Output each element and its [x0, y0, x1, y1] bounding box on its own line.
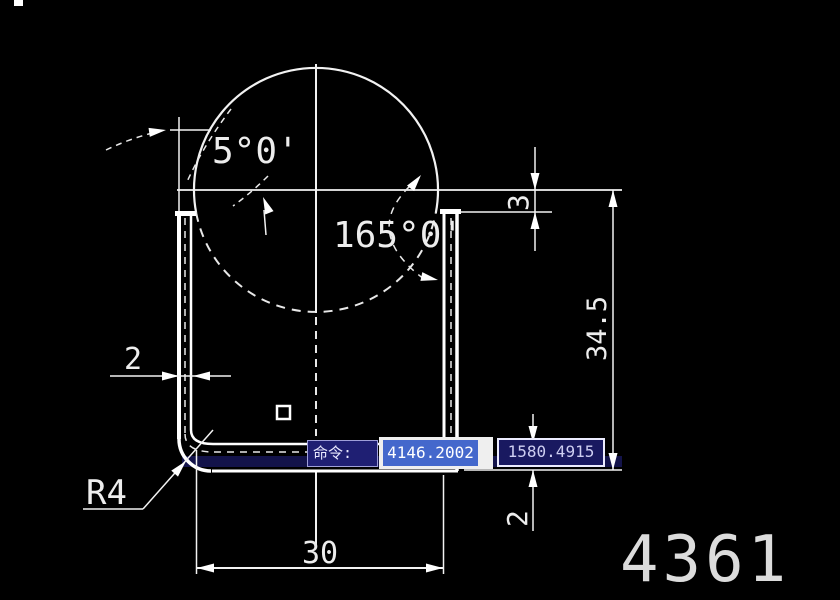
- dim-wall-thickness-label: 2: [124, 342, 142, 377]
- dim-overall-height-label: 34.5: [582, 296, 613, 361]
- dim-flange-offset-label: 3: [502, 194, 535, 211]
- dim30-arrow-left: [197, 564, 214, 573]
- dim-angle-large-label: 165°0': [333, 215, 463, 256]
- coordinate-x-value[interactable]: 4146.2002: [383, 440, 478, 466]
- dim-angle-small-label: 5°0': [212, 131, 299, 172]
- dim3-arrow-top: [531, 173, 540, 190]
- grip-point[interactable]: [277, 406, 290, 419]
- angle165-arrow-top: [407, 172, 425, 191]
- coordinate-y-field[interactable]: 1580.4915: [497, 438, 605, 467]
- command-prompt[interactable]: 命令:: [307, 440, 378, 467]
- dim-bottom-width-label: 30: [302, 536, 338, 571]
- dim-fillet-radius-label: R4: [86, 473, 127, 513]
- angle5-arrow-left: [149, 126, 167, 137]
- command-prompt-label: 命令:: [313, 444, 352, 462]
- left-wall-top-cap: [175, 211, 196, 216]
- dim2left-arrow-a: [162, 372, 179, 381]
- angle5-ext-arc-right: [233, 176, 268, 206]
- dim345-arrow-top: [609, 190, 618, 207]
- coordinate-x-field[interactable]: 4146.2002: [379, 437, 493, 469]
- dim345-arrow-bottom: [609, 453, 618, 470]
- drawing-canvas: 30 2 3 2 34.5 R4 5°0': [0, 0, 840, 600]
- screen-artifact: [14, 0, 23, 6]
- angle165-arrow-bottom: [420, 272, 438, 284]
- cad-viewport[interactable]: 30 2 3 2 34.5 R4 5°0': [0, 0, 840, 600]
- sheet-number: 4361: [620, 528, 790, 592]
- coordinate-y-value: 1580.4915: [508, 442, 595, 461]
- dim2left-arrow-b: [193, 372, 210, 381]
- dim-bottom-thickness-label: 2: [501, 510, 534, 527]
- dim30-arrow-right: [426, 564, 443, 573]
- angle5-arrow-right: [259, 195, 274, 214]
- dim2bot-arrow-bottom: [529, 470, 538, 487]
- right-wall-top-cap: [440, 209, 461, 214]
- dim3-arrow-bottom: [531, 212, 540, 229]
